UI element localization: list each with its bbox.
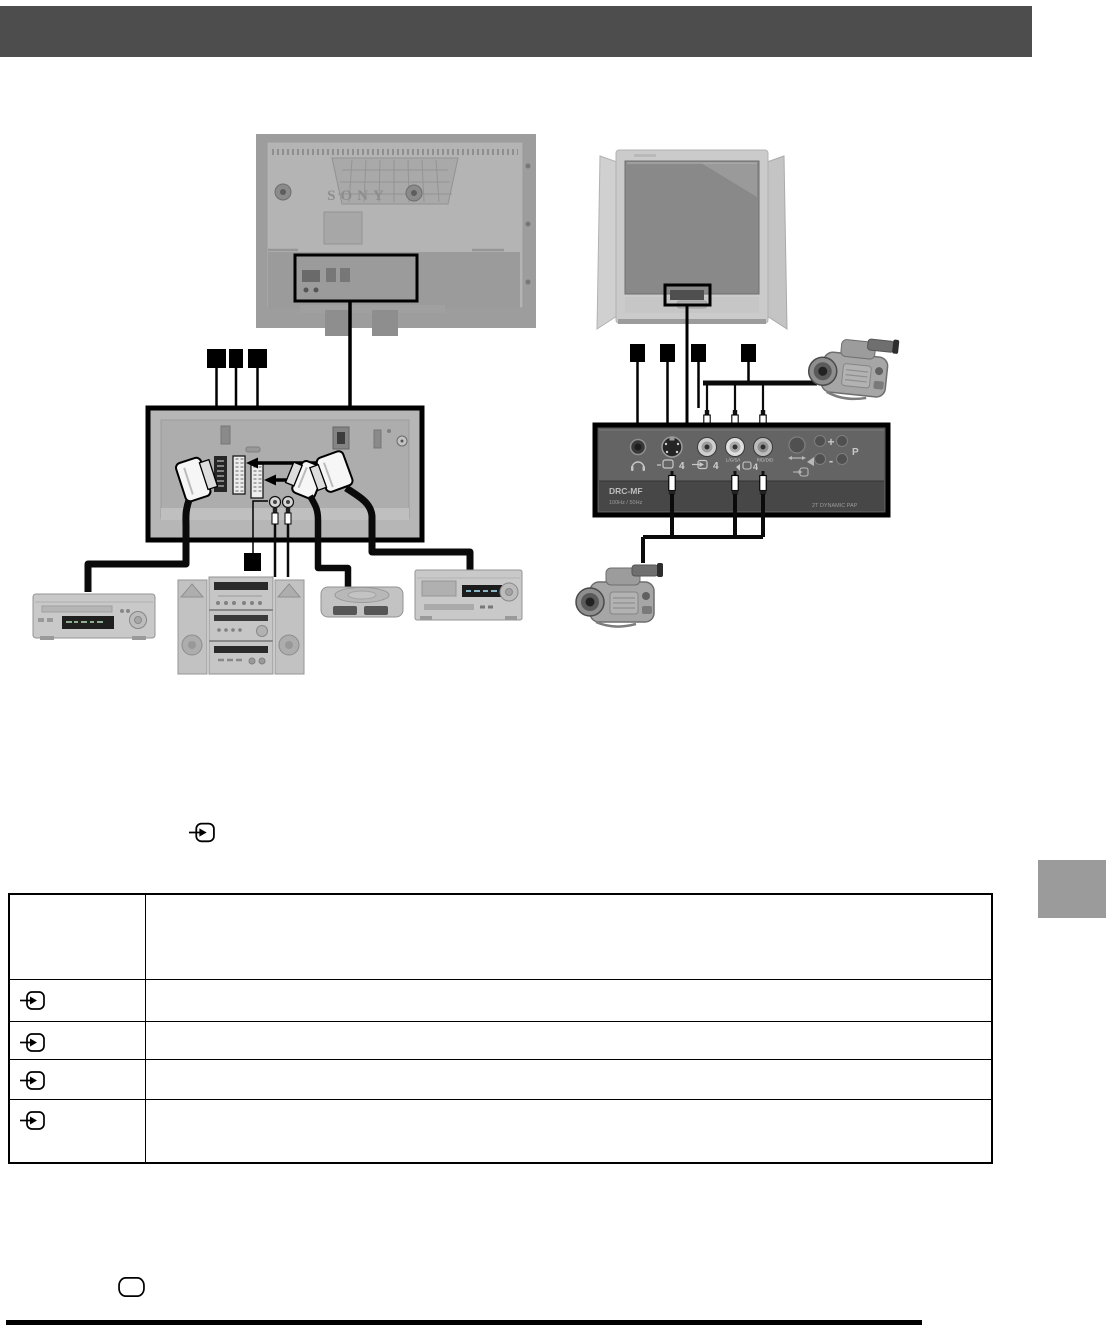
callout-square [741, 344, 756, 362]
video-rca-jack [698, 438, 717, 457]
input-icon [20, 1032, 46, 1054]
video-input-number: 4 [713, 461, 719, 472]
callout-square [229, 349, 243, 368]
audio-left-rca-jack [726, 438, 745, 457]
table-symbol-cell [10, 980, 146, 1021]
table-header-description-cell [146, 895, 991, 979]
game-console-image [321, 587, 403, 617]
table-row [10, 1021, 991, 1059]
table-description-cell [146, 1060, 991, 1099]
volume-up-button [815, 436, 826, 447]
table-row [10, 1059, 991, 1099]
table-symbol-cell [10, 1100, 146, 1162]
dvd-player-image [33, 594, 155, 640]
front-panel: 4 4 L/G/S/I R/D/ [595, 425, 888, 515]
panel-feature-label: 2T DYNAMIC PAP [812, 503, 858, 509]
input-icon [20, 990, 46, 1012]
hifi-system-image [178, 577, 304, 674]
callout-square [660, 344, 675, 362]
plus-label: + [827, 435, 834, 449]
page-header-bar [0, 6, 1032, 57]
crt-tv-rear-image: SONY [256, 134, 536, 336]
panel-model-label: DRC-MF [609, 486, 643, 496]
callout-square [207, 349, 226, 368]
ok-button [789, 437, 805, 453]
scart-socket [233, 456, 245, 494]
front-connection-diagram: 4 4 L/G/S/I R/D/ [560, 100, 1106, 700]
table-header-row [10, 895, 991, 979]
program-up-button [837, 436, 848, 447]
rear-connection-diagram: SONY [0, 100, 560, 700]
table-symbol-cell [10, 1060, 146, 1099]
callout-square [244, 553, 261, 571]
sony-logo: SONY [327, 188, 389, 204]
program-label: P [852, 447, 859, 458]
table-row [10, 979, 991, 1021]
volume-down-button [815, 454, 826, 465]
chapter-side-tab [1038, 860, 1106, 918]
callout-square [630, 344, 645, 362]
input-icon [20, 1070, 46, 1092]
audio-right-rca-jack [754, 438, 773, 457]
flat-tv-image [597, 150, 787, 329]
vcr-image [415, 570, 522, 620]
camcorder-image [806, 331, 899, 403]
table-description-cell [146, 1100, 991, 1162]
audio-input-number: 4 [753, 462, 758, 472]
callout-square [248, 349, 267, 368]
s-video-jack [662, 437, 682, 457]
camcorder-cables [703, 383, 817, 410]
input-icon [189, 821, 216, 845]
connection-table [8, 893, 993, 1164]
table-description-cell [146, 980, 991, 1021]
camcorder-image [576, 563, 663, 627]
table-symbol-cell [10, 1022, 146, 1059]
callout-square [691, 344, 706, 362]
screen-shape-icon [117, 1276, 146, 1299]
headphone-jack [631, 440, 646, 455]
minus-label: - [829, 453, 833, 468]
svideo-input-number: 4 [679, 461, 685, 472]
bottom-rule [6, 1320, 922, 1325]
manual-page: SONY [0, 0, 1106, 1330]
scart-socket [251, 464, 263, 498]
panel-refresh-label: 100Hz / 50Hz [609, 500, 643, 506]
input-icon [20, 1110, 46, 1132]
table-header-symbol-cell [10, 895, 146, 979]
audio-right-label: R/D/D/D [757, 458, 775, 463]
audio-left-label: L/G/S/I [726, 458, 740, 463]
table-description-cell [146, 1022, 991, 1059]
table-row [10, 1099, 991, 1162]
program-down-button [837, 454, 848, 465]
